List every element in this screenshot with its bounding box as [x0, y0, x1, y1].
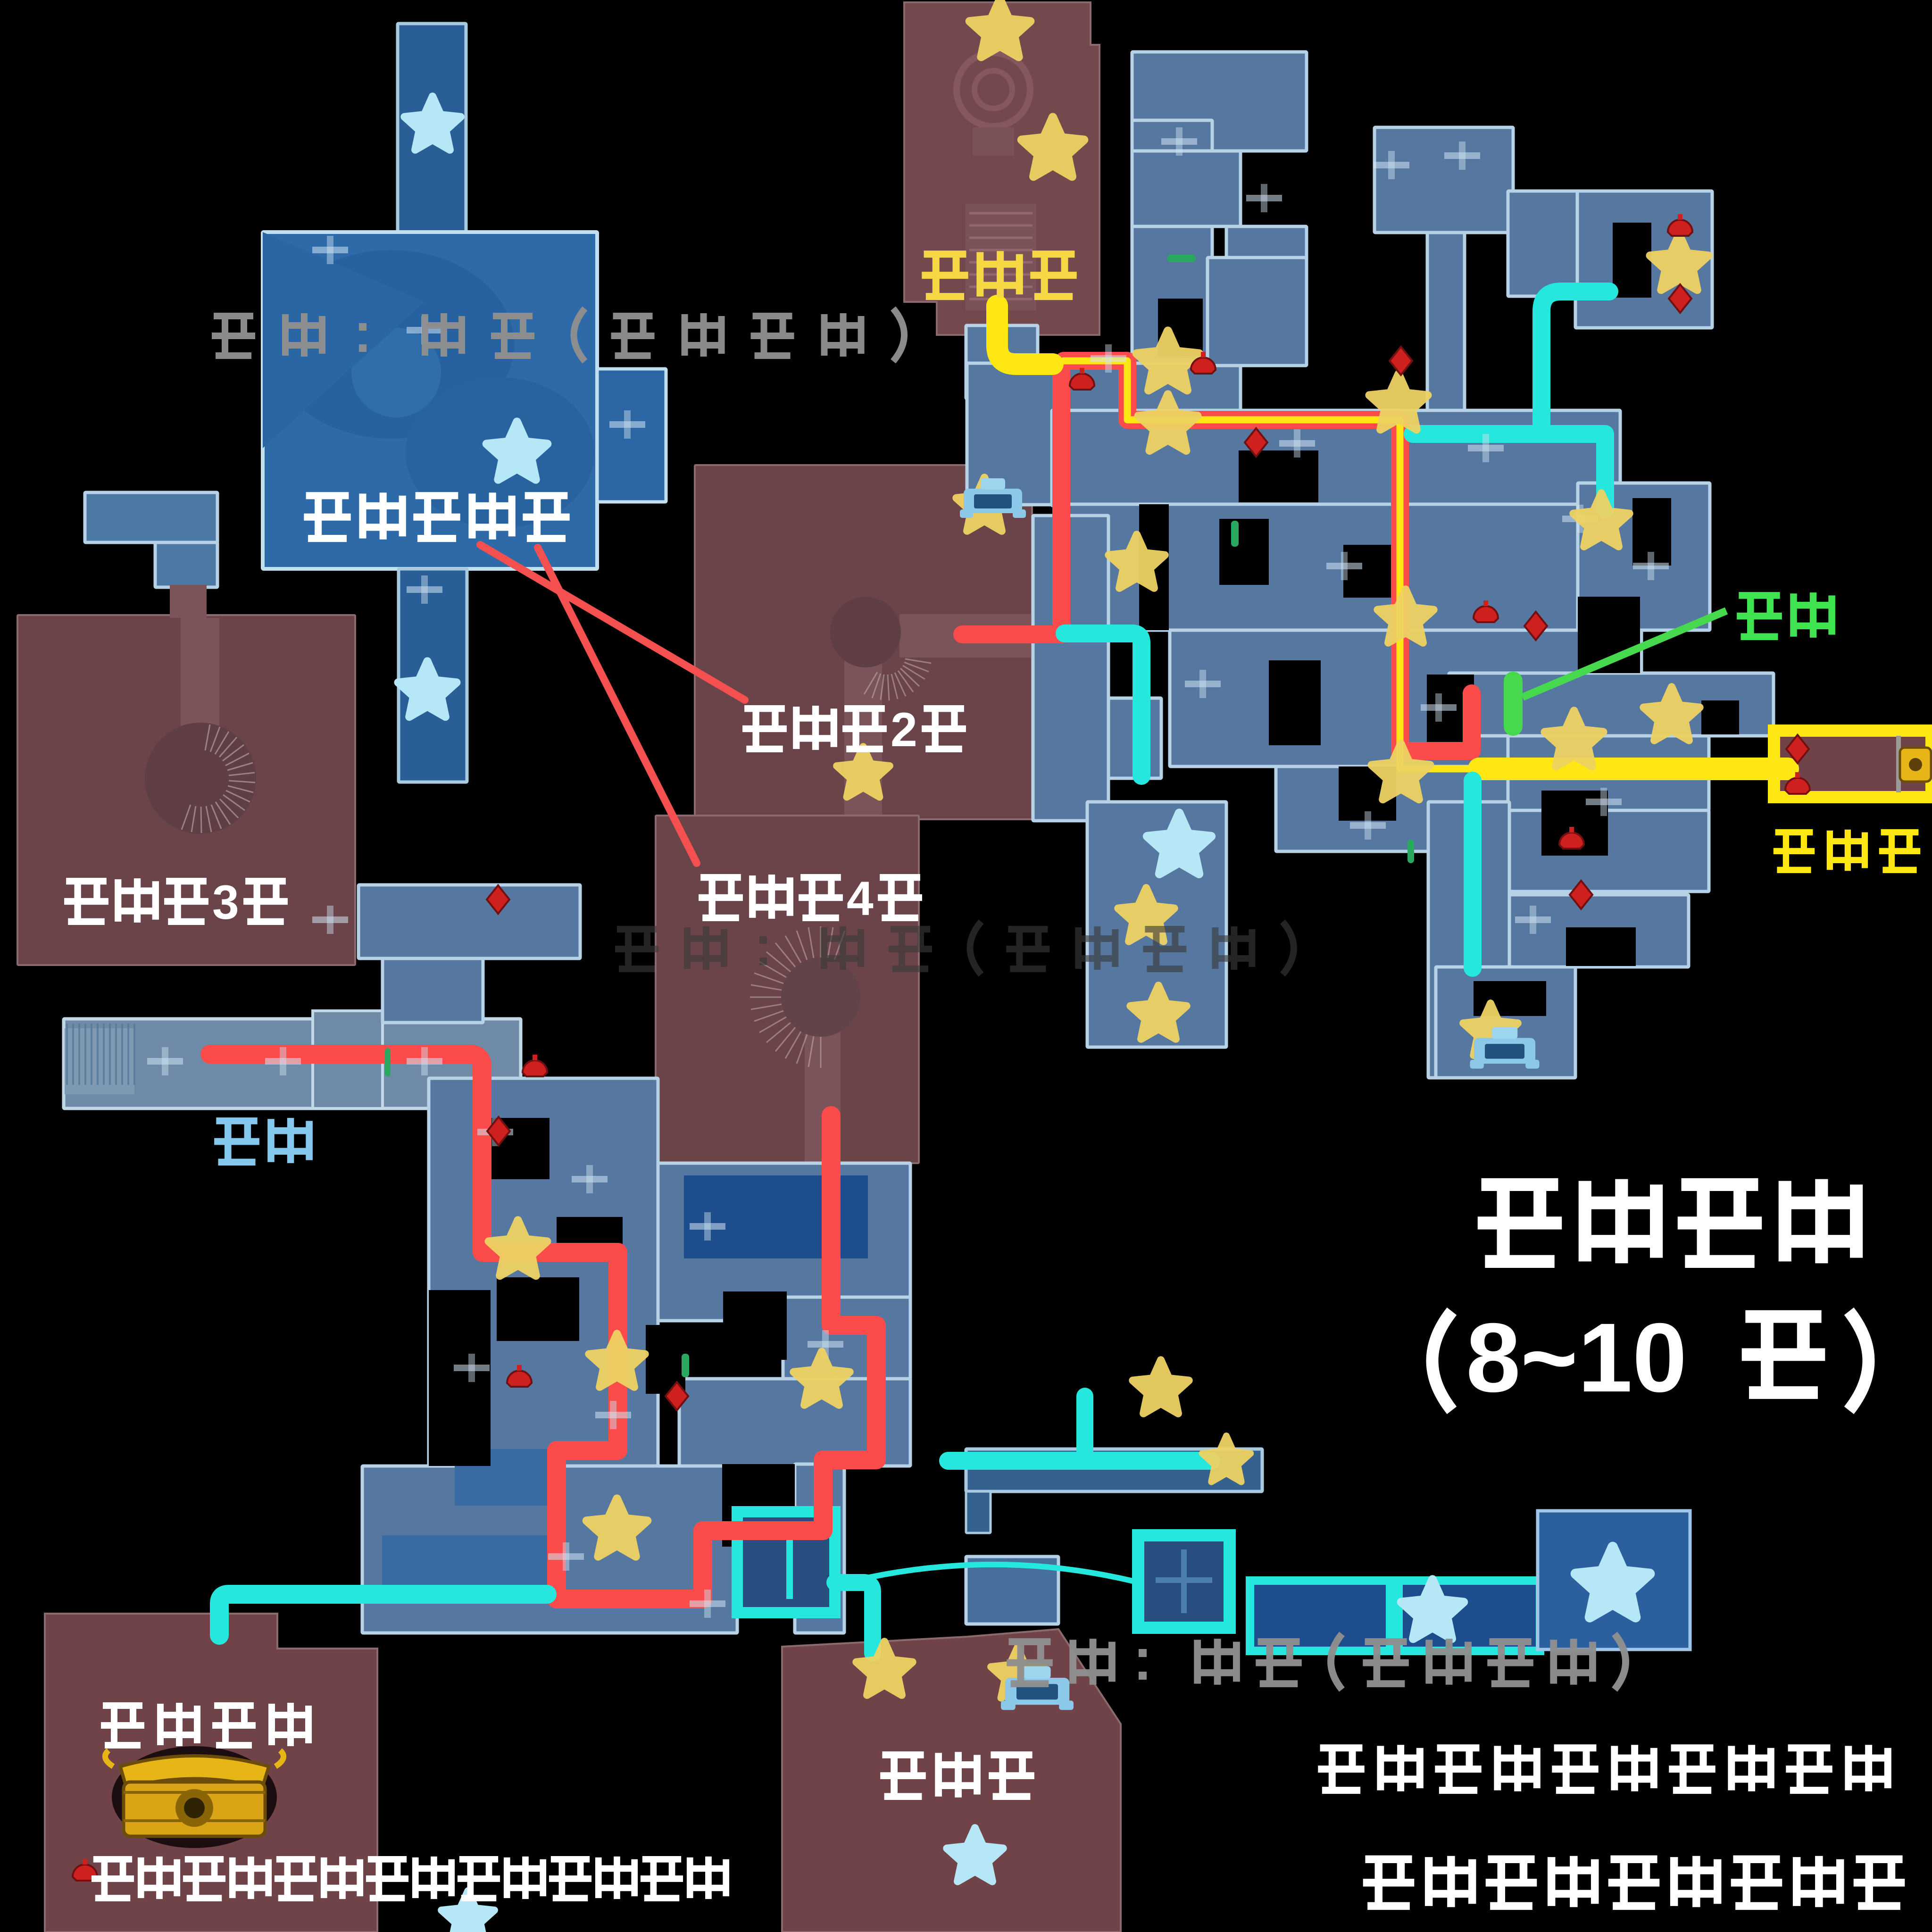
svg-text:3: 3 [212, 875, 239, 929]
svg-text:2: 2 [891, 703, 917, 757]
svg-text:8~10: 8~10 [1466, 1303, 1687, 1413]
svg-text:4: 4 [847, 872, 874, 925]
